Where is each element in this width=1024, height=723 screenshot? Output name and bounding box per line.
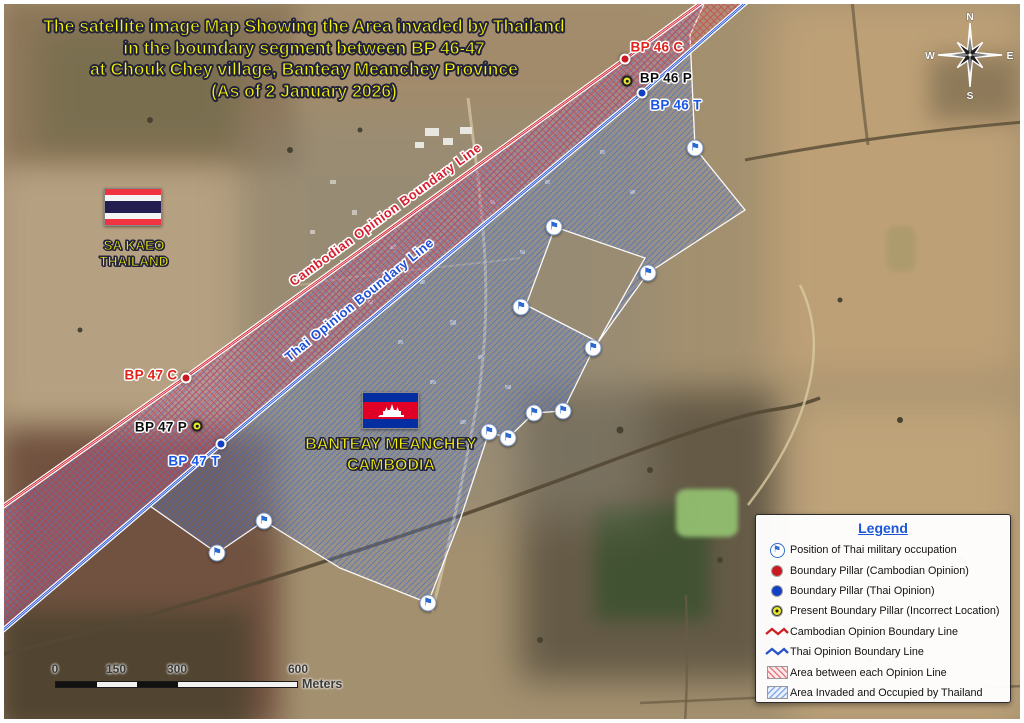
legend-item-label: Position of Thai military occupation — [790, 544, 957, 556]
legend-item: Area Invaded and Occupied by Thailand — [764, 683, 1002, 703]
present-pillar-icon — [772, 606, 782, 616]
legend-item: Boundary Pillar (Cambodian Opinion) — [764, 560, 1002, 580]
cambodian-pillar-icon — [772, 566, 782, 576]
legend-item: Thai Opinion Boundary Line — [764, 642, 1002, 662]
compass-e-label: E — [1006, 50, 1013, 62]
cambodian-line-icon — [764, 626, 790, 638]
legend-item-label: Present Boundary Pillar (Incorrect Locat… — [790, 605, 999, 617]
legend-item-label: Cambodian Opinion Boundary Line — [790, 626, 958, 638]
scale-bar-segments — [55, 681, 298, 688]
legend-item: Area between each Opinion Line — [764, 662, 1002, 682]
compass-n-label: N — [966, 11, 974, 23]
scale-tick-300: 300 — [167, 662, 187, 676]
invaded-area-swatch-icon — [767, 686, 788, 699]
legend-item-label: Area between each Opinion Line — [790, 667, 947, 679]
scale-bar: 0 150 300 600 Meters — [40, 656, 385, 700]
legend-item: ⚑ Position of Thai military occupation — [764, 540, 1002, 560]
compass-w-label: W — [925, 50, 935, 62]
compass-s-label: S — [966, 90, 973, 102]
legend-title: Legend — [764, 520, 1002, 536]
scale-unit-label: Meters — [302, 677, 342, 691]
legend-item-label: Thai Opinion Boundary Line — [790, 646, 924, 658]
scale-tick-150: 150 — [106, 662, 126, 676]
legend-panel: Legend ⚑ Position of Thai military occup… — [755, 514, 1011, 703]
thai-military-flag-icon: ⚑ — [770, 543, 785, 558]
thai-line-icon — [764, 646, 790, 658]
legend-item: Cambodian Opinion Boundary Line — [764, 622, 1002, 642]
thai-pillar-icon — [772, 586, 782, 596]
satellite-map-canvas[interactable]: Cambodian Opinion Boundary Line Thai Opi… — [0, 0, 1024, 723]
legend-item-label: Boundary Pillar (Thai Opinion) — [790, 585, 935, 597]
between-area-swatch-icon — [767, 666, 788, 679]
legend-item-label: Boundary Pillar (Cambodian Opinion) — [790, 565, 969, 577]
scale-tick-600: 600 — [288, 662, 308, 676]
legend-item: Boundary Pillar (Thai Opinion) — [764, 581, 1002, 601]
legend-item-label: Area Invaded and Occupied by Thailand — [790, 687, 982, 699]
legend-item: Present Boundary Pillar (Incorrect Locat… — [764, 601, 1002, 621]
scale-tick-0: 0 — [52, 662, 59, 676]
